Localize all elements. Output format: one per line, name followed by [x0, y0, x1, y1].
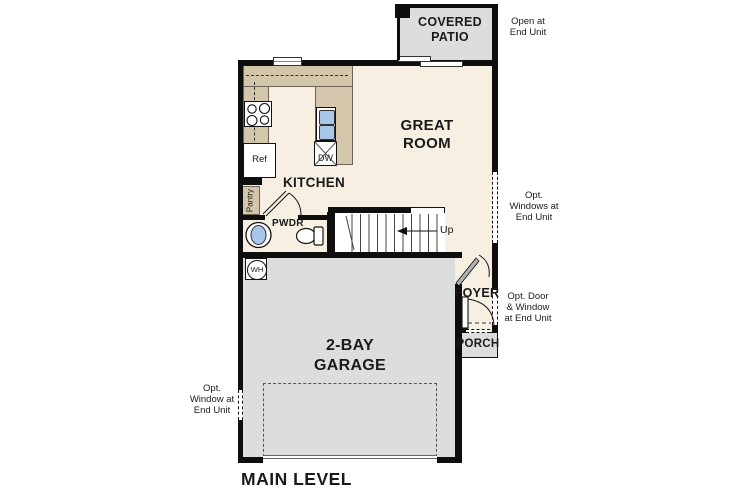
powder-door [263, 191, 301, 216]
annotation-patio-open: Open at End Unit [510, 16, 546, 38]
great-room-label: GREAT ROOM [401, 117, 454, 154]
porch-label: PORCH [456, 337, 499, 351]
stairs [335, 213, 445, 252]
stairs-up-label: Up [440, 224, 453, 237]
annotation-opt-windows: Opt. Windows at End Unit [509, 190, 558, 224]
front-door [462, 297, 494, 328]
annotation-opt-window-left: Opt. Window at End Unit [190, 383, 234, 417]
kitchen-label: KITCHEN [283, 175, 345, 191]
plan-linework [0, 0, 750, 500]
powder-sink [246, 223, 271, 248]
annotation-opt-door-window: Opt. Door & Window at End Unit [505, 291, 552, 325]
foyer-label: FOYER [455, 286, 500, 301]
floor-plan: Ref DW Pantry WH [0, 0, 750, 500]
powder-label: PWDR [272, 218, 304, 230]
plan-title: MAIN LEVEL [241, 469, 352, 490]
covered-patio-label: COVERED PATIO [418, 15, 482, 46]
stove-burners [247, 104, 270, 126]
dishwasher-x [314, 141, 337, 166]
garage-label: 2-BAY GARAGE [314, 336, 386, 375]
garage-entry-door [456, 255, 489, 286]
